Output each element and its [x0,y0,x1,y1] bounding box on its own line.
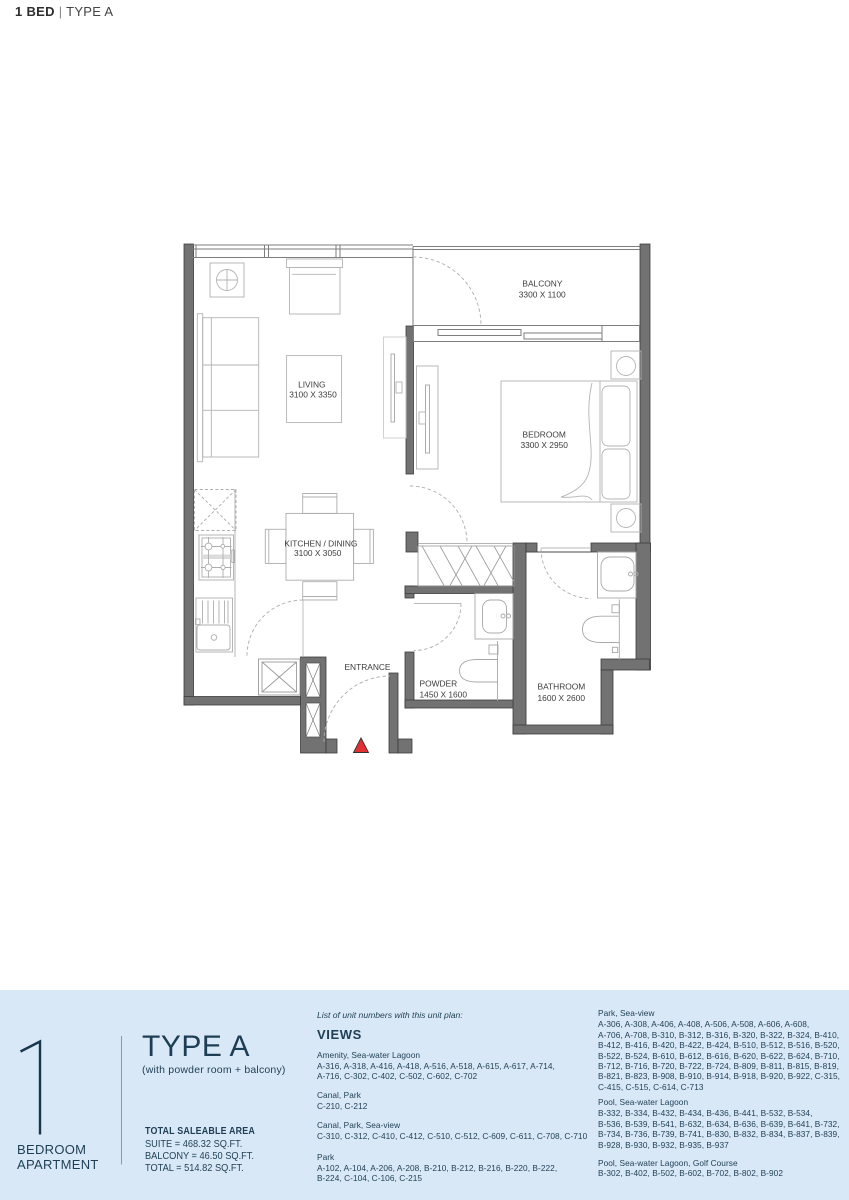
svg-text:3300 X 2950: 3300 X 2950 [520,440,568,450]
svg-text:3100 X 3350: 3100 X 3350 [289,390,337,400]
svg-text:BALCONY: BALCONY [522,279,562,289]
svg-text:BATHROOM: BATHROOM [538,682,586,692]
svg-text:LIVING: LIVING [298,379,325,389]
svg-text:ENTRANCE: ENTRANCE [344,662,390,672]
svg-text:1600 X 2600: 1600 X 2600 [538,693,586,703]
svg-text:3100 X 3050: 3100 X 3050 [294,548,342,558]
svg-text:BEDROOM: BEDROOM [523,430,566,440]
svg-text:3300 X 1100: 3300 X 1100 [519,290,566,300]
svg-text:POWDER: POWDER [420,679,458,689]
svg-text:1450 X 1600: 1450 X 1600 [420,689,468,699]
svg-text:KITCHEN / DINING: KITCHEN / DINING [284,539,357,549]
